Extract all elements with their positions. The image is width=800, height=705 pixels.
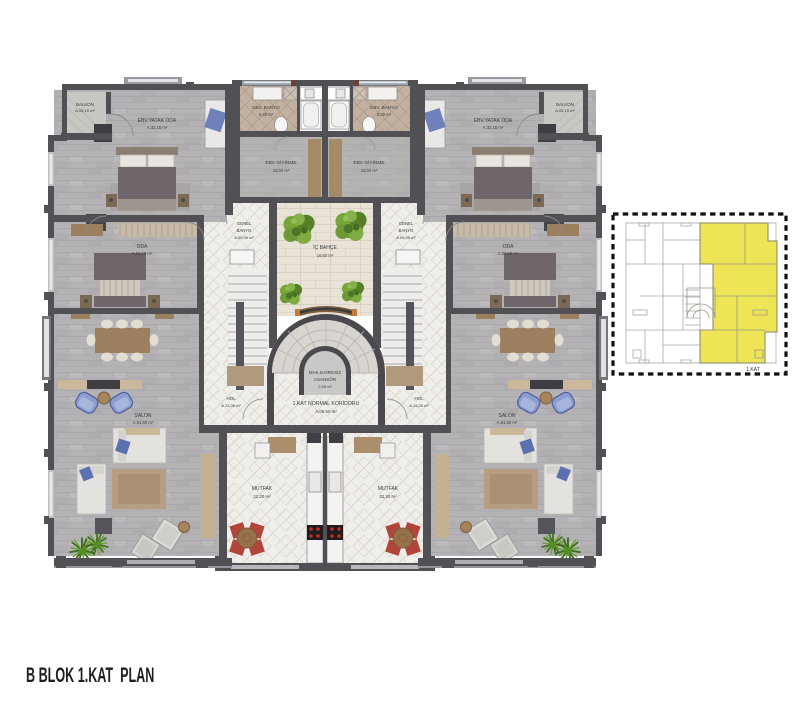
svg-text:GENEL: GENEL: [237, 221, 252, 226]
svg-text:2,99 m²: 2,99 m²: [318, 384, 332, 389]
svg-text:A.32,15 m²: A.32,15 m²: [483, 125, 504, 130]
svg-text:A.05,95 m²: A.05,95 m²: [234, 235, 254, 240]
svg-text:16,60 m²: 16,60 m²: [317, 253, 334, 258]
svg-text:SALON: SALON: [135, 413, 152, 419]
svg-text:A.21,15 m²: A.21,15 m²: [498, 251, 519, 256]
svg-text:B BLOK 1.KAT PLAN: B BLOK 1.KAT PLAN: [26, 663, 154, 687]
svg-text:A.05,10 m²: A.05,10 m²: [75, 108, 95, 113]
svg-text:EBV GİYİNME: EBV GİYİNME: [353, 159, 384, 166]
svg-text:A.05,10 m²: A.05,10 m²: [555, 108, 575, 113]
svg-text:A.32,15 m²: A.32,15 m²: [147, 125, 168, 130]
svg-text:HOL: HOL: [414, 396, 424, 401]
svg-text:A.61,60 m²: A.61,60 m²: [497, 420, 518, 425]
svg-text:MUTFAK: MUTFAK: [252, 486, 273, 492]
svg-text:MAK.DAİRESİZ: MAK.DAİRESİZ: [309, 369, 342, 375]
svg-text:EBV. BANYO: EBV. BANYO: [252, 105, 280, 110]
svg-text:6,30 m²: 6,30 m²: [377, 112, 392, 117]
svg-text:10,00 m²: 10,00 m²: [361, 168, 378, 173]
svg-text:1.KAT NORMAL KORİDORU: 1.KAT NORMAL KORİDORU: [293, 400, 360, 407]
svg-text:A.61,60 m²: A.61,60 m²: [133, 420, 154, 425]
svg-text:EBV.YATAK ODA: EBV.YATAK ODA: [138, 118, 177, 124]
svg-text:22,20 m²: 22,20 m²: [253, 494, 271, 499]
svg-text:BALKON: BALKON: [556, 102, 574, 107]
svg-text:1.KAT: 1.KAT: [746, 367, 760, 373]
svg-text:ODA: ODA: [503, 244, 515, 250]
svg-text:A.05,95 m²: A.05,95 m²: [396, 235, 416, 240]
svg-text:BANYO: BANYO: [399, 228, 414, 233]
svg-text:EBV. BANYO: EBV. BANYO: [370, 105, 398, 110]
svg-text:A.13,35 m²: A.13,35 m²: [409, 403, 429, 408]
svg-text:MUTFAK: MUTFAK: [378, 486, 399, 492]
svg-text:BANYO: BANYO: [237, 228, 252, 233]
svg-text:10,00 m²: 10,00 m²: [273, 168, 290, 173]
svg-text:BALKON: BALKON: [76, 102, 94, 107]
svg-text:İÇ BAHÇE: İÇ BAHÇE: [313, 244, 337, 251]
svg-text:GENEL: GENEL: [399, 221, 414, 226]
svg-text:A.13,35 m²: A.13,35 m²: [221, 403, 241, 408]
svg-text:ODA: ODA: [137, 244, 149, 250]
svg-text:A.21,15 m²: A.21,15 m²: [132, 251, 153, 256]
svg-text:EBV GİYİNME: EBV GİYİNME: [265, 159, 296, 166]
svg-text:A.08,50 m²: A.08,50 m²: [315, 409, 337, 414]
svg-text:EBV.YATAK ODA: EBV.YATAK ODA: [474, 118, 513, 124]
svg-text:HOL: HOL: [226, 396, 236, 401]
svg-text:ASANSÖR: ASANSÖR: [314, 376, 337, 382]
svg-text:22,20 m²: 22,20 m²: [379, 494, 397, 499]
svg-text:6,30 m²: 6,30 m²: [259, 112, 274, 117]
svg-text:SALON: SALON: [499, 413, 516, 419]
